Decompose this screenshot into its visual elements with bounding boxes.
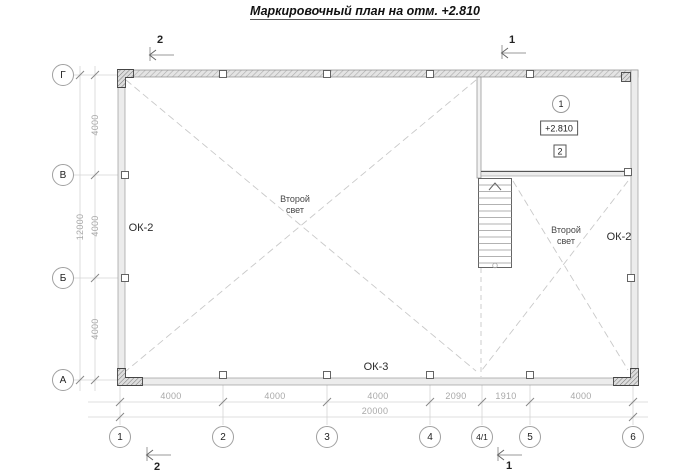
- col-axis-bubble-5: 5: [519, 426, 541, 448]
- col-axis-bubble-3: 3: [316, 426, 338, 448]
- section-number-top-left: 2: [157, 34, 163, 46]
- col-axis-bubble-2: 2: [212, 426, 234, 448]
- dim-bottom-seg-3: 4000: [367, 391, 388, 401]
- second-light-label-main: Второй свет: [280, 194, 310, 216]
- row-axis-bubble-v: В: [52, 164, 74, 186]
- floor-plan-canvas: [0, 0, 700, 474]
- room-node-bubble: 1: [552, 95, 570, 113]
- section-cut-marks: [147, 45, 527, 461]
- col-axis-bubble-4-1: 4/1: [471, 426, 493, 448]
- row-axis-bubble-a: А: [52, 369, 74, 391]
- dim-bottom-seg-5: 1910: [495, 391, 516, 401]
- dim-bottom-seg-1: 4000: [160, 391, 181, 401]
- elevation-mark: +2.810: [540, 121, 578, 136]
- col-axis-bubble-4: 4: [419, 426, 441, 448]
- row-axis-bubble-b: Б: [52, 267, 74, 289]
- section-number-top-right: 1: [509, 34, 515, 46]
- section-number-bottom-right: 1: [506, 460, 512, 472]
- dim-bottom-total: 20000: [362, 406, 389, 416]
- room-number-mark: 2: [554, 145, 567, 158]
- dim-left-seg-2: 4000: [90, 215, 100, 236]
- dim-bottom-seg-6: 4000: [570, 391, 591, 401]
- dim-left-seg-3: 4000: [90, 318, 100, 339]
- floor-plan-drawing: Маркировочный план на отм. +2.810 Г В Б …: [0, 0, 700, 474]
- dim-left-total: 12000: [75, 214, 85, 241]
- window-label-ok2-right: ОК-2: [607, 231, 632, 243]
- drawing-title: Маркировочный план на отм. +2.810: [250, 4, 480, 20]
- col-axis-bubble-6: 6: [622, 426, 644, 448]
- second-light-label-right: Второй свет: [551, 225, 581, 247]
- dim-bottom-seg-4: 2090: [445, 391, 466, 401]
- dim-bottom-seg-2: 4000: [264, 391, 285, 401]
- staircase: [479, 179, 512, 268]
- window-label-ok3: ОК-3: [364, 361, 389, 373]
- dim-left-seg-1: 4000: [90, 114, 100, 135]
- row-axis-bubble-g: Г: [52, 64, 74, 86]
- col-axis-bubble-1: 1: [109, 426, 131, 448]
- section-number-bottom-left: 2: [154, 461, 160, 473]
- window-label-ok2-left: ОК-2: [129, 222, 154, 234]
